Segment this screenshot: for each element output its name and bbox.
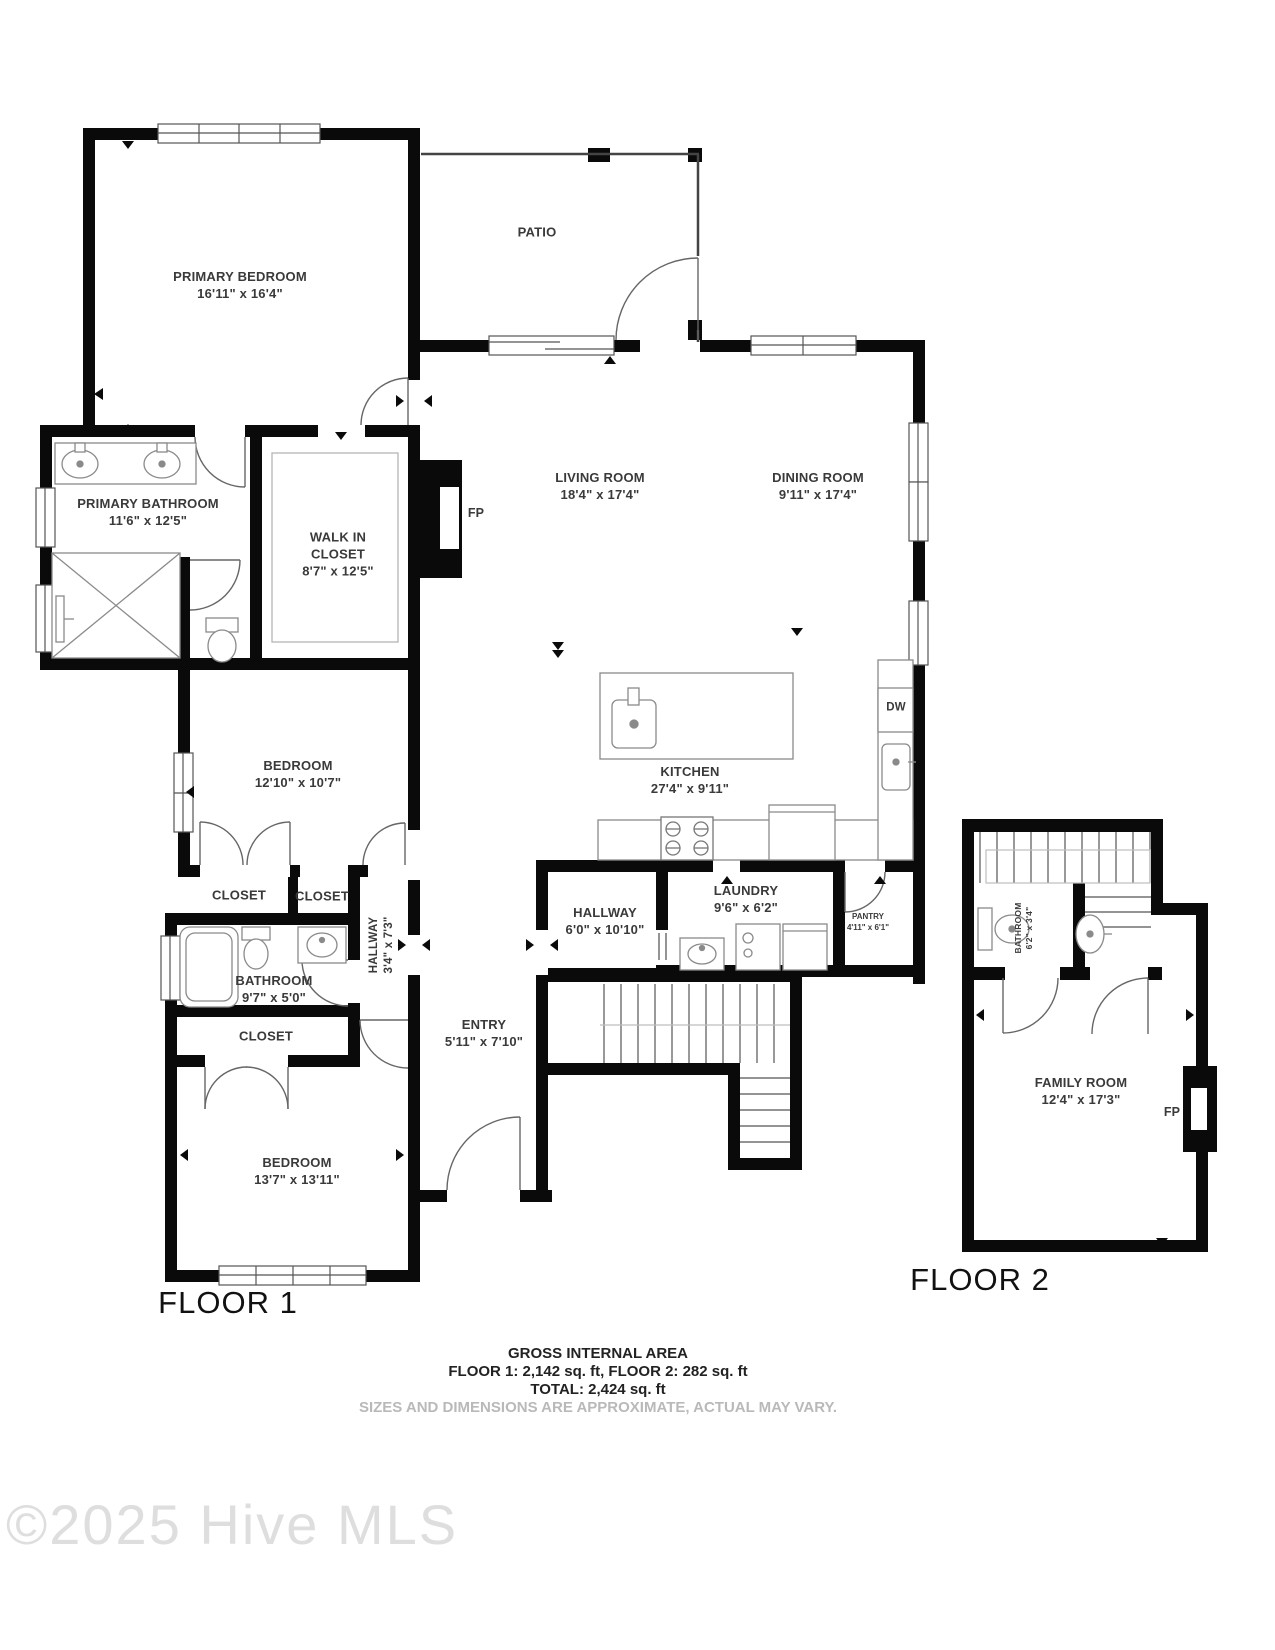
room-name: PANTRY [852, 912, 884, 921]
room-label-hallway-small: HALLWAY 3'4" x 7'3" [367, 917, 397, 974]
room-dims: 3'4" x 7'3" [382, 917, 397, 974]
fireplace-icon [420, 460, 462, 578]
dishwasher-label: DW [886, 701, 906, 716]
window-patio-slider [489, 336, 614, 355]
room-label-walk-in-closet: WALK IN CLOSET 8'7" x 12'5" [296, 530, 380, 581]
room-name: PATIO [518, 225, 557, 240]
room-name: DINING ROOM [772, 470, 864, 485]
bathtub-icon [180, 927, 238, 1007]
toilet-icon-primary [206, 618, 238, 662]
room-label-living-room: LIVING ROOM 18'4" x 17'4" [555, 470, 645, 504]
room-name: BATHROOM [235, 973, 312, 988]
floor1-title: FLOOR 1 [158, 1285, 298, 1321]
room-name: ENTRY [462, 1017, 507, 1032]
footer-disclaimer: SIZES AND DIMENSIONS ARE APPROXIMATE, AC… [359, 1399, 837, 1416]
room-label-primary-bedroom: PRIMARY BEDROOM 16'11" x 16'4" [173, 269, 307, 303]
room-label-patio: PATIO [518, 225, 557, 242]
room-label-closet-a: CLOSET [212, 888, 266, 905]
kitchen-right-counter [878, 660, 916, 860]
floor2-walls [962, 819, 1208, 1252]
window-dining-right-2 [909, 482, 928, 541]
window-living-top [751, 336, 856, 355]
room-label-family-room: FAMILY ROOM 12'4" x 17'3" [1035, 1075, 1128, 1109]
door-laundry-pocket [659, 933, 666, 960]
window-primary-bath-left-1 [36, 488, 55, 547]
floor2-fixtures [978, 908, 1112, 953]
room-dims: 18'4" x 17'4" [555, 487, 645, 504]
room-dims: 9'11" x 17'4" [772, 487, 864, 504]
room-dims: 5'11" x 7'10" [445, 1034, 523, 1051]
floor2-title: FLOOR 2 [910, 1262, 1050, 1298]
fireplace-label-floor1: FP [468, 505, 484, 521]
window-kitchen-right [909, 601, 928, 665]
window-bedroom3-bottom [219, 1266, 366, 1285]
room-dims: 8'7" x 12'5" [296, 563, 380, 580]
floor2-stairs [980, 832, 1151, 927]
kitchen-island [600, 673, 793, 759]
room-label-dining-room: DINING ROOM 9'11" x 17'4" [772, 470, 864, 504]
room-dims: 12'10" x 10'7" [255, 775, 341, 792]
room-label-entry: ENTRY 5'11" x 7'10" [445, 1017, 523, 1051]
room-label-pantry: PANTRY 4'11" x 6'1" [847, 911, 889, 933]
window-bathroom-left [161, 936, 180, 1000]
patio-outline [421, 154, 699, 342]
door-bedroom3-closet [205, 1067, 288, 1109]
floorplan-canvas: PRIMARY BEDROOM 16'11" x 16'4" PATIO LIV… [0, 0, 1275, 1650]
room-label-kitchen: KITCHEN 27'4" x 9'11" [651, 764, 729, 798]
room-dims: 9'6" x 6'2" [714, 900, 778, 917]
washer-icon [736, 924, 780, 970]
door-bedroom3 [360, 1020, 408, 1068]
door-bedroom2 [363, 823, 405, 865]
room-name: HALLWAY [573, 905, 637, 920]
room-name: KITCHEN [660, 764, 719, 779]
footer-gross-area: GROSS INTERNAL AREA [508, 1345, 688, 1362]
room-dims: 16'11" x 16'4" [173, 286, 307, 303]
fireplace-icon-floor2 [1183, 1066, 1217, 1152]
door-primary-bathroom [195, 437, 245, 487]
room-name: PRIMARY BATHROOM [77, 496, 219, 511]
door-patio [616, 258, 698, 340]
room-dims: 11'6" x 12'5" [77, 513, 219, 530]
room-dims: 13'7" x 13'11" [254, 1172, 340, 1189]
fireplace-label-floor2: FP [1164, 1104, 1180, 1120]
sink-icon-hall [298, 927, 346, 963]
room-dims: 12'4" x 17'3" [1035, 1092, 1128, 1109]
room-name: FAMILY ROOM [1035, 1075, 1128, 1090]
room-name: BEDROOM [263, 758, 332, 773]
floor2-doors [1003, 978, 1148, 1034]
door-bathroom-floor2 [1003, 978, 1058, 1033]
room-name: CLOSET [239, 1029, 293, 1044]
window-dining-right-1 [909, 423, 928, 482]
footer-floor-areas: FLOOR 1: 2,142 sq. ft, FLOOR 2: 282 sq. … [448, 1363, 747, 1380]
kitchen-counter [598, 820, 913, 860]
footer-total-area: TOTAL: 2,424 sq. ft [530, 1381, 665, 1398]
room-label-bathroom: BATHROOM 9'7" x 5'0" [235, 973, 312, 1007]
room-name: BATHROOM [1013, 902, 1023, 953]
room-label-primary-bathroom: PRIMARY BATHROOM 11'6" x 12'5" [77, 496, 219, 530]
room-dims: 4'11" x 6'1" [847, 922, 889, 933]
window-primary-bedroom-top [158, 124, 320, 143]
room-label-hallway: HALLWAY 6'0" x 10'10" [566, 905, 645, 939]
door-bedroom2-closet [200, 822, 290, 865]
room-name: CLOSET [212, 888, 266, 903]
room-dims: 27'4" x 9'11" [651, 781, 729, 798]
room-name: LAUNDRY [714, 883, 778, 898]
watermark: ©2025 Hive MLS [6, 1492, 458, 1557]
room-label-bathroom-floor2: BATHROOM 6'2" x 3'4" [1013, 902, 1035, 953]
door-front-entry [447, 1117, 520, 1190]
stove-icon [661, 817, 713, 860]
room-label-bedroom2: BEDROOM 12'10" x 10'7" [255, 758, 341, 792]
sink-icon-floor2 [1076, 915, 1112, 953]
room-label-closet-c: CLOSET [239, 1029, 293, 1046]
room-name: PRIMARY BEDROOM [173, 269, 307, 284]
room-dims: 9'7" x 5'0" [235, 990, 312, 1007]
fridge-icon [769, 805, 835, 860]
room-label-closet-b: CLOSET [295, 889, 349, 906]
door-shower-compartment [190, 560, 240, 610]
door-stairs-floor2 [1092, 978, 1148, 1034]
room-dims: 6'2" x 3'4" [1024, 902, 1035, 953]
room-label-bedroom3: BEDROOM 13'7" x 13'11" [254, 1155, 340, 1189]
shower-icon [52, 553, 180, 658]
laundry-sink-icon [680, 938, 724, 970]
room-name: CLOSET [295, 889, 349, 904]
double-vanity-icon [55, 443, 196, 484]
room-name: LIVING ROOM [555, 470, 645, 485]
room-dims: 6'0" x 10'10" [566, 922, 645, 939]
room-name: BEDROOM [262, 1155, 331, 1170]
room-name: WALK IN CLOSET [296, 530, 380, 564]
room-name: HALLWAY [368, 917, 380, 974]
dryer-icon [783, 924, 827, 970]
toilet-icon-hall [242, 927, 270, 969]
room-label-laundry: LAUNDRY 9'6" x 6'2" [714, 883, 778, 917]
